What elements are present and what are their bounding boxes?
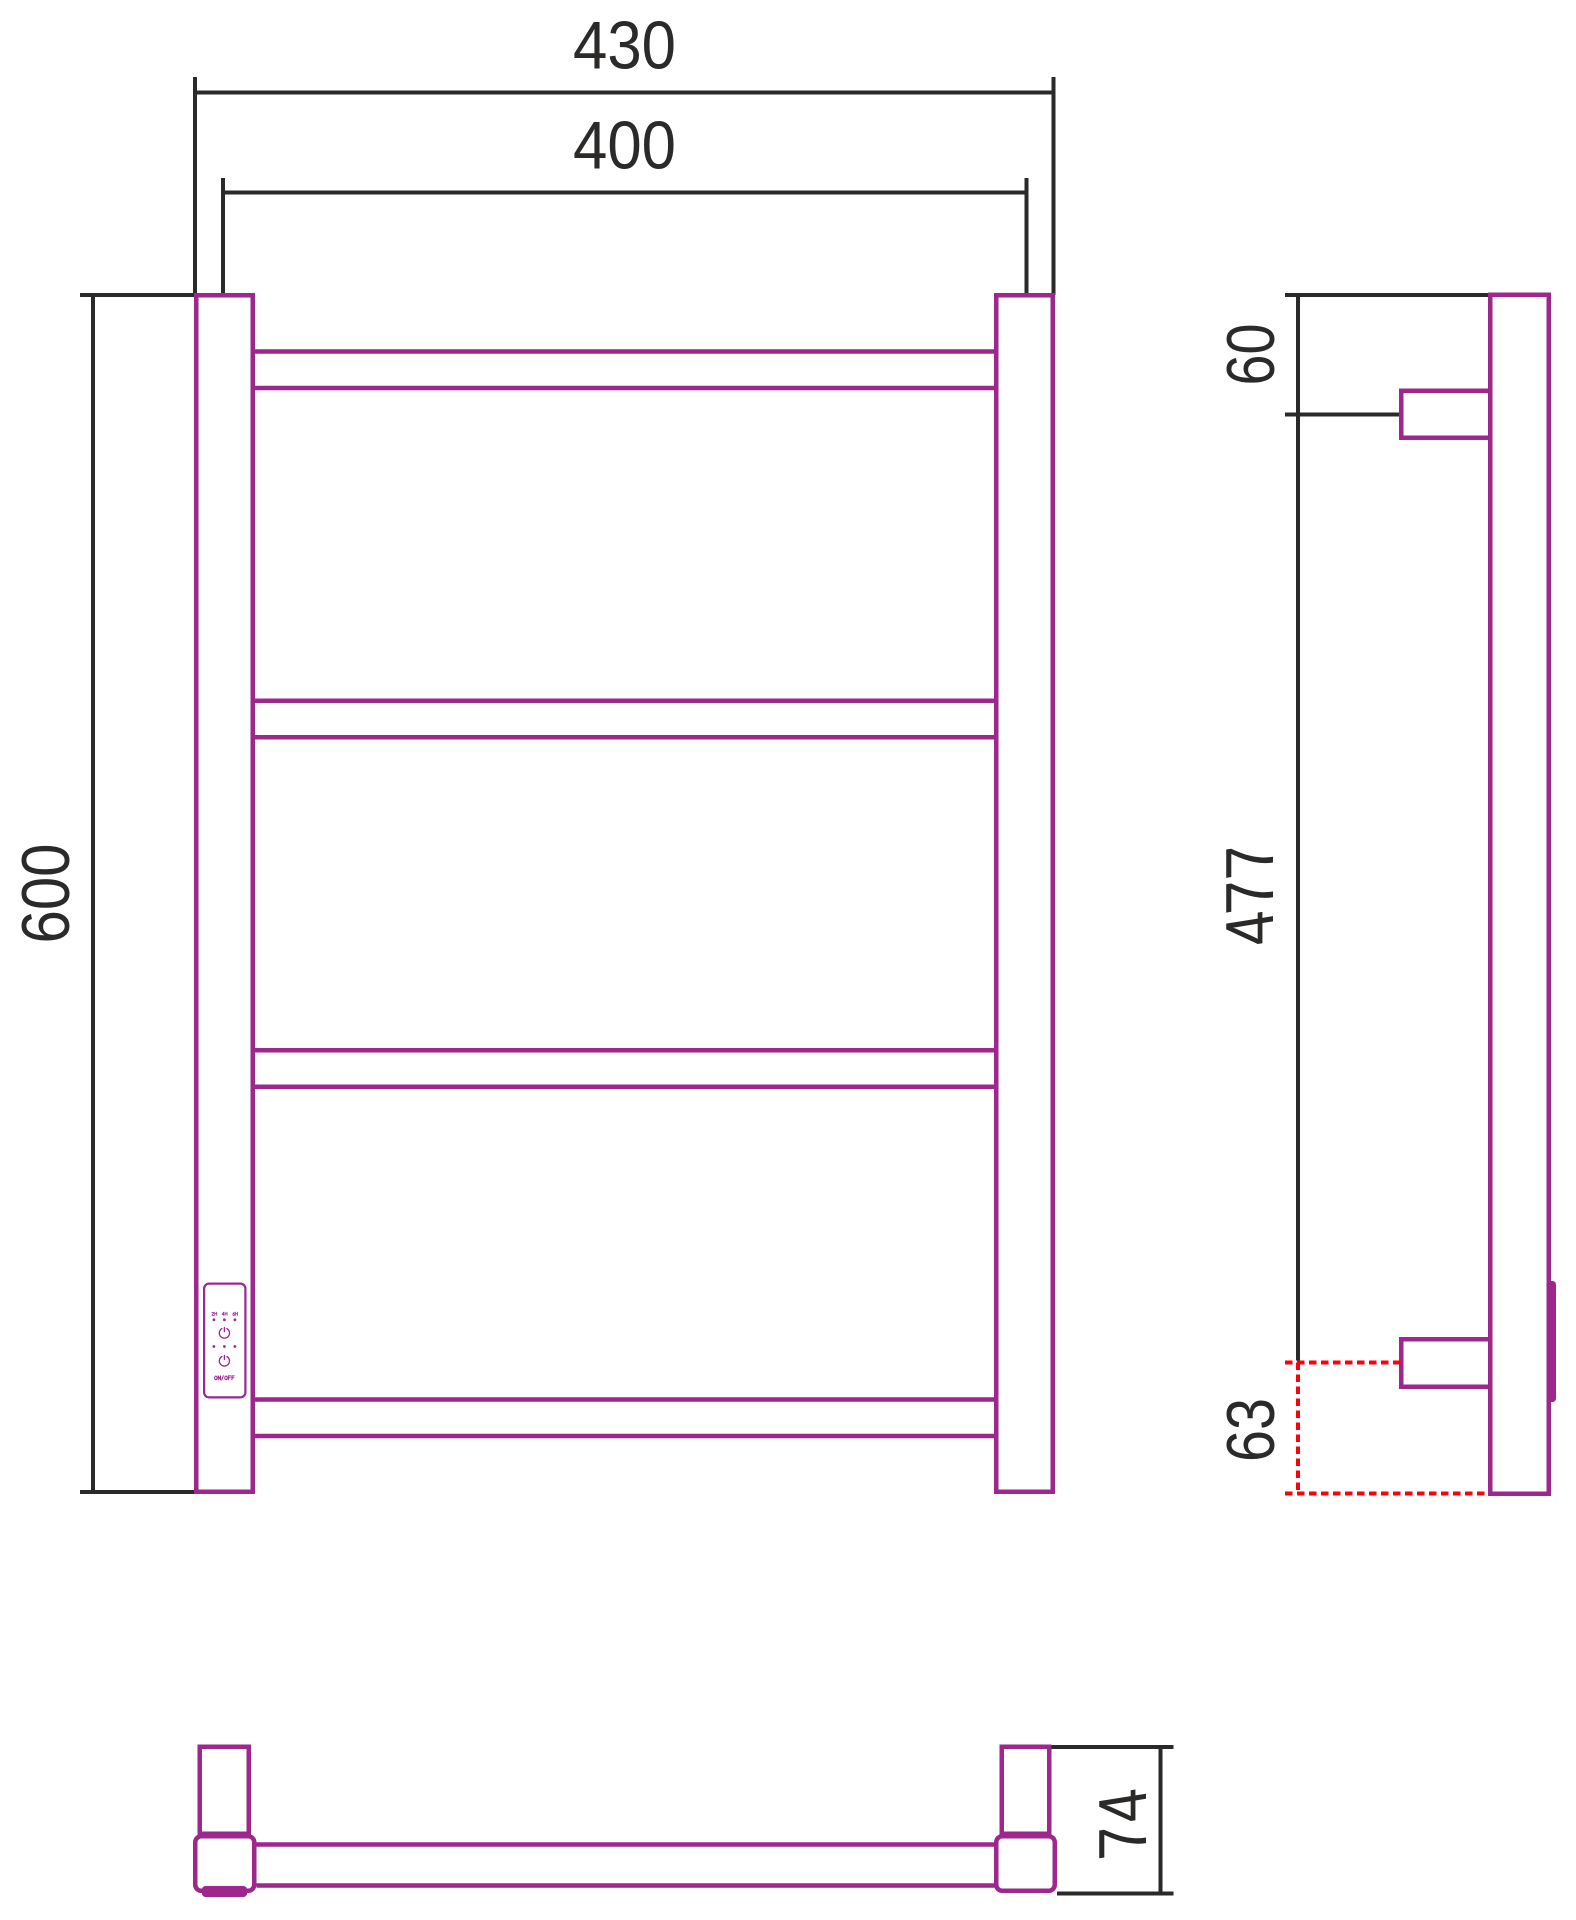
- svg-text:60: 60: [1213, 324, 1289, 386]
- svg-text:400: 400: [573, 108, 676, 184]
- svg-text:600: 600: [8, 844, 84, 944]
- svg-text:63: 63: [1213, 1398, 1289, 1462]
- svg-text:477: 477: [1212, 837, 1288, 953]
- svg-text:430: 430: [573, 8, 676, 84]
- svg-text:74: 74: [1085, 1784, 1161, 1864]
